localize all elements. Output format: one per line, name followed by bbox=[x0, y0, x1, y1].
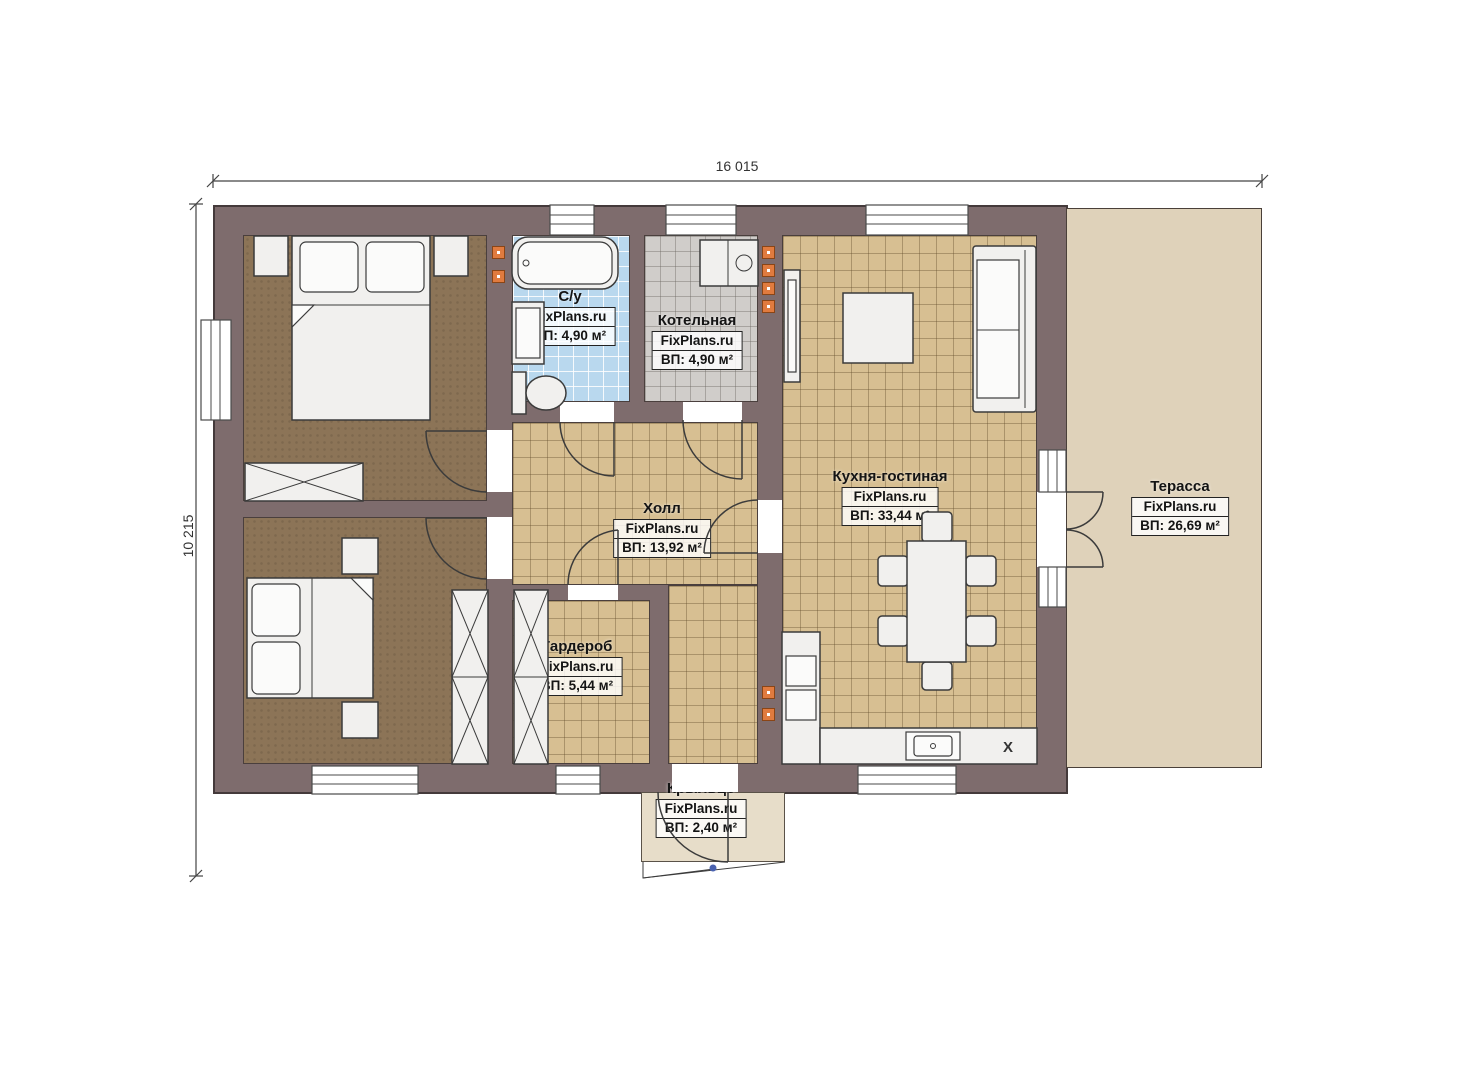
room-info-box: FixPlans.ru ВП: 5,44 м² bbox=[532, 657, 623, 696]
room-info-box: FixPlans.ru ВП: 13,92 м² bbox=[613, 519, 711, 558]
room-name: Спальня bbox=[273, 600, 371, 617]
room-label-bedroom-1: Спальня FixPlans.ru ВП: 14,95 м² bbox=[326, 280, 424, 338]
area-text: ВП: 33,44 м² bbox=[842, 506, 938, 525]
room-label-bedroom-2: Спальня FixPlans.ru ВП: 14,95 м² bbox=[273, 600, 371, 658]
brand-text: FixPlans.ru bbox=[526, 308, 615, 326]
brand-text: FixPlans.ru bbox=[327, 300, 423, 318]
room-name: Кухня-гостиная bbox=[833, 468, 948, 485]
room-info-box: FixPlans.ru ВП: 2,40 м² bbox=[656, 799, 747, 838]
area-text: ВП: 2,40 м² bbox=[657, 818, 746, 837]
room-name: Терасса bbox=[1131, 478, 1229, 495]
room-bedroom-1-floor bbox=[243, 235, 487, 501]
dimension-height-label: 10 215 bbox=[180, 491, 196, 581]
outlet-marker bbox=[492, 246, 505, 259]
outlet-marker bbox=[762, 264, 775, 277]
area-text: ВП: 14,95 м² bbox=[274, 638, 370, 657]
room-name: Холл bbox=[613, 500, 711, 517]
brand-text: FixPlans.ru bbox=[653, 332, 742, 350]
room-label-bathroom: С/у FixPlans.ru ВП: 4,90 м² bbox=[525, 288, 616, 346]
room-info-box: FixPlans.ru ВП: 4,90 м² bbox=[525, 307, 616, 346]
room-info-box: FixPlans.ru ВП: 14,95 м² bbox=[326, 299, 424, 338]
room-name: Крыльцо bbox=[656, 780, 747, 797]
room-label-porch: Крыльцо FixPlans.ru ВП: 2,40 м² bbox=[656, 780, 747, 838]
dimension-width-label: 16 015 bbox=[692, 158, 782, 174]
outlet-marker bbox=[762, 282, 775, 295]
room-info-box: FixPlans.ru ВП: 26,69 м² bbox=[1131, 497, 1229, 536]
room-label-boiler: Котельная FixPlans.ru ВП: 4,90 м² bbox=[652, 312, 743, 370]
brand-text: FixPlans.ru bbox=[274, 620, 370, 638]
room-info-box: FixPlans.ru ВП: 4,90 м² bbox=[652, 331, 743, 370]
room-info-box: FixPlans.ru ВП: 14,95 м² bbox=[273, 619, 371, 658]
room-label-hall: Холл FixPlans.ru ВП: 13,92 м² bbox=[613, 500, 711, 558]
room-name: Спальня bbox=[326, 280, 424, 297]
room-label-kitchen-living: Кухня-гостиная FixPlans.ru ВП: 33,44 м² bbox=[833, 468, 948, 526]
room-name: Котельная bbox=[652, 312, 743, 329]
area-text: ВП: 26,69 м² bbox=[1132, 516, 1228, 535]
brand-text: FixPlans.ru bbox=[614, 520, 710, 538]
room-label-terrace: Терасса FixPlans.ru ВП: 26,69 м² bbox=[1131, 478, 1229, 536]
outlet-marker bbox=[762, 686, 775, 699]
room-name: Гардероб bbox=[532, 638, 623, 655]
porch-steps bbox=[643, 862, 785, 878]
outlet-marker bbox=[762, 708, 775, 721]
outlet-marker bbox=[492, 270, 505, 283]
area-text: ВП: 14,95 м² bbox=[327, 318, 423, 337]
floor-plan-canvas: Спальня FixPlans.ru ВП: 14,95 м² С/у Fix… bbox=[0, 0, 1473, 1080]
area-text: ВП: 4,90 м² bbox=[653, 350, 742, 369]
area-text: ВП: 5,44 м² bbox=[533, 676, 622, 695]
brand-text: FixPlans.ru bbox=[533, 658, 622, 676]
brand-text: FixPlans.ru bbox=[1132, 498, 1228, 516]
outlet-marker bbox=[762, 300, 775, 313]
room-label-wardrobe: Гардероб FixPlans.ru ВП: 5,44 м² bbox=[532, 638, 623, 696]
outlet-marker bbox=[762, 246, 775, 259]
room-hall-corridor-floor bbox=[668, 585, 758, 764]
brand-text: FixPlans.ru bbox=[842, 488, 938, 506]
room-name: С/у bbox=[525, 288, 616, 305]
brand-text: FixPlans.ru bbox=[657, 800, 746, 818]
area-text: ВП: 13,92 м² bbox=[614, 538, 710, 557]
room-info-box: FixPlans.ru ВП: 33,44 м² bbox=[841, 487, 939, 526]
area-text: ВП: 4,90 м² bbox=[526, 326, 615, 345]
